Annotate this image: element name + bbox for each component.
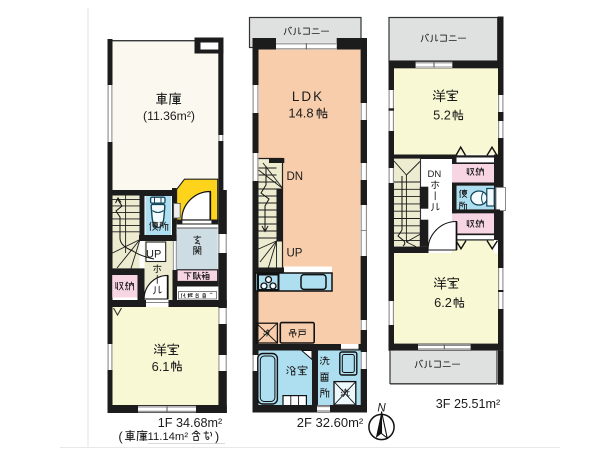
svg-text:(: ( — [118, 429, 123, 444]
svg-text:2F 32.60m²: 2F 32.60m² — [297, 415, 364, 430]
svg-text:6.1: 6.1 — [152, 359, 170, 374]
svg-text:DN: DN — [287, 171, 304, 183]
svg-text:3F 25.51m²: 3F 25.51m² — [436, 397, 500, 411]
svg-text:(11.36m²): (11.36m²) — [143, 109, 195, 123]
svg-text:): ) — [215, 429, 219, 444]
svg-text:UP: UP — [146, 249, 161, 261]
svg-text:6.2: 6.2 — [434, 295, 452, 310]
svg-text:5.2: 5.2 — [433, 108, 451, 123]
svg-text:DN: DN — [428, 169, 442, 180]
svg-text:UP: UP — [287, 248, 303, 260]
svg-text:14.8: 14.8 — [288, 106, 313, 121]
svg-text:LDK: LDK — [292, 89, 324, 104]
svg-text:1F 34.68m²: 1F 34.68m² — [158, 416, 222, 430]
svg-text:11.14m²: 11.14m² — [148, 431, 189, 443]
